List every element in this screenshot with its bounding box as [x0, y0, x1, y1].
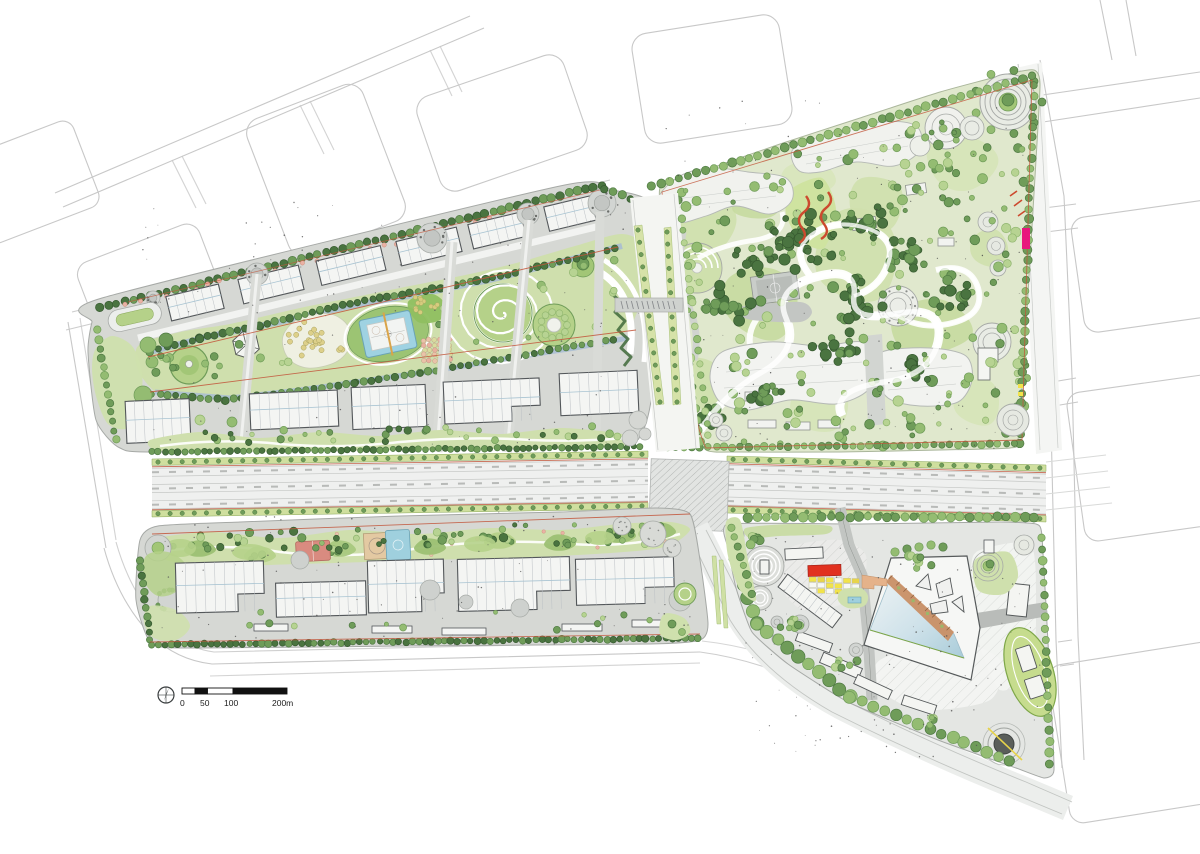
svg-text:100: 100	[224, 698, 238, 708]
svg-text:0: 0	[180, 698, 185, 708]
svg-text:50: 50	[200, 698, 210, 708]
svg-text:200m: 200m	[272, 698, 293, 708]
